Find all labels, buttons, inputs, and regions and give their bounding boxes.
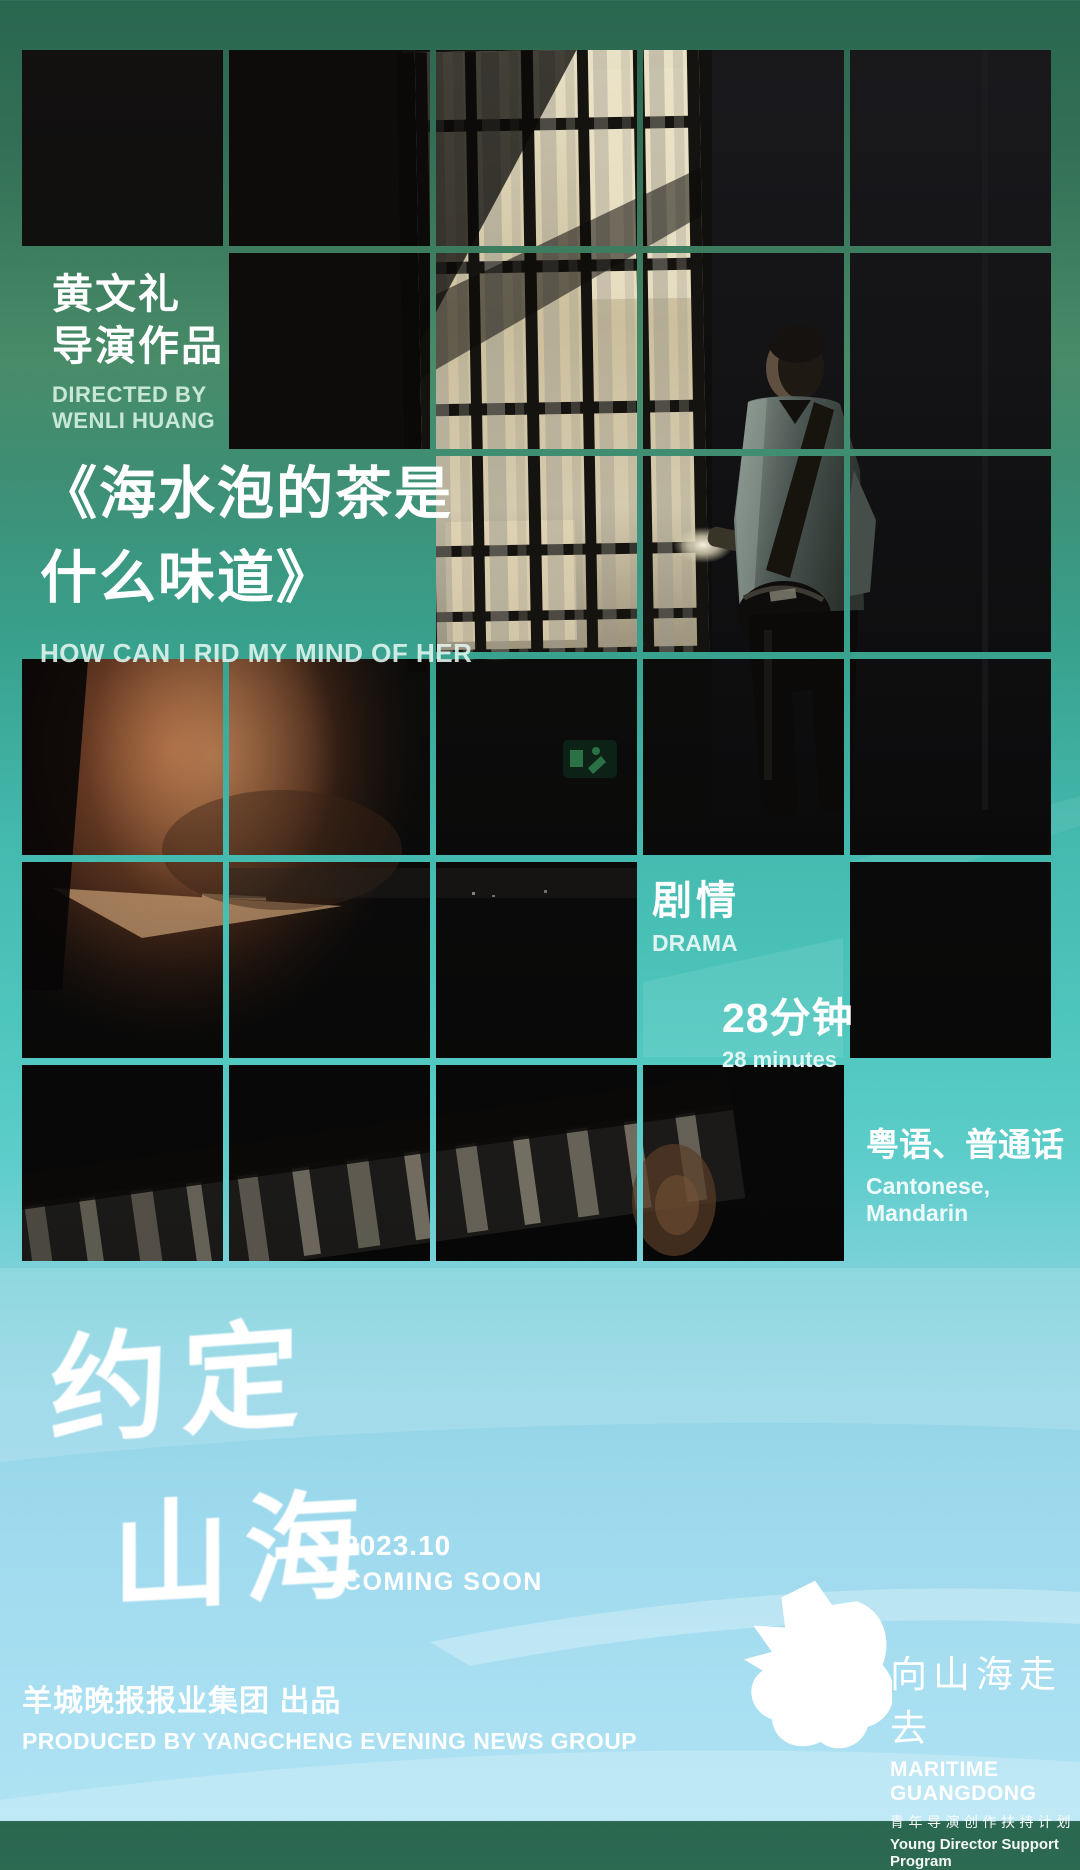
maritime-guangdong-logo-icon	[742, 1575, 892, 1755]
director-works-zh: 导演作品	[52, 320, 224, 372]
director-credit: 黄文礼 导演作品 DIRECTED BY WENLI HUANG	[52, 268, 224, 434]
brand-line1: 约定	[50, 1273, 375, 1467]
director-name-en: WENLI HUANG	[52, 408, 224, 434]
program-sub-en: Young Director Support Program	[890, 1836, 1080, 1870]
producer-credit: 羊城晚报报业集团 出品 PRODUCED BY YANGCHENG EVENIN…	[22, 1676, 637, 1755]
film-title-en: HOW CAN I RID MY MIND OF HER	[40, 638, 472, 669]
genre-block: 剧情 DRAMA	[652, 868, 740, 957]
film-title-zh-line2: 什么味道》	[40, 536, 472, 620]
language-en: Cantonese, Mandarin	[866, 1173, 1080, 1227]
language-zh: 粤语、普通话	[866, 1118, 1080, 1166]
genre-zh: 剧情	[652, 868, 740, 926]
film-title: 《海水泡的茶是 什么味道》 HOW CAN I RID MY MIND OF H…	[40, 452, 472, 669]
genre-en: DRAMA	[652, 930, 740, 957]
release-date-block: 2023.10 COMING SOON	[343, 1530, 543, 1597]
campaign-brand: 约定 山海	[50, 1296, 376, 1634]
director-name-zh: 黄文礼	[52, 268, 224, 320]
duration-block: 28分钟 28 minutes	[722, 984, 854, 1073]
program-logo-text: 向山海走去 MARITIME GUANGDONG 青年导演创作扶持计划 Youn…	[890, 1644, 1080, 1870]
duration-en: 28 minutes	[722, 1047, 854, 1073]
producer-en: PRODUCED BY YANGCHENG EVENING NEWS GROUP	[22, 1728, 637, 1755]
directed-by-label: DIRECTED BY	[52, 382, 224, 408]
exit-sign	[563, 740, 617, 778]
brand-line2: 山海	[112, 1449, 376, 1634]
program-sub-zh: 青年导演创作扶持计划	[890, 1812, 1080, 1832]
duration-zh: 28分钟	[722, 984, 854, 1044]
producer-zh: 羊城晚报报业集团 出品	[22, 1676, 637, 1720]
language-block: 粤语、普通话 Cantonese, Mandarin	[866, 1118, 1080, 1227]
film-title-zh-line1: 《海水泡的茶是	[40, 452, 472, 536]
program-name-zh: 向山海走去	[890, 1644, 1080, 1752]
coming-soon-label: COMING SOON	[343, 1568, 543, 1597]
program-name-en: MARITIME GUANGDONG	[890, 1758, 1080, 1806]
movie-poster: { "poster": { "director_credit": { "zh_l…	[0, 0, 1080, 1821]
release-date: 2023.10	[343, 1530, 543, 1562]
